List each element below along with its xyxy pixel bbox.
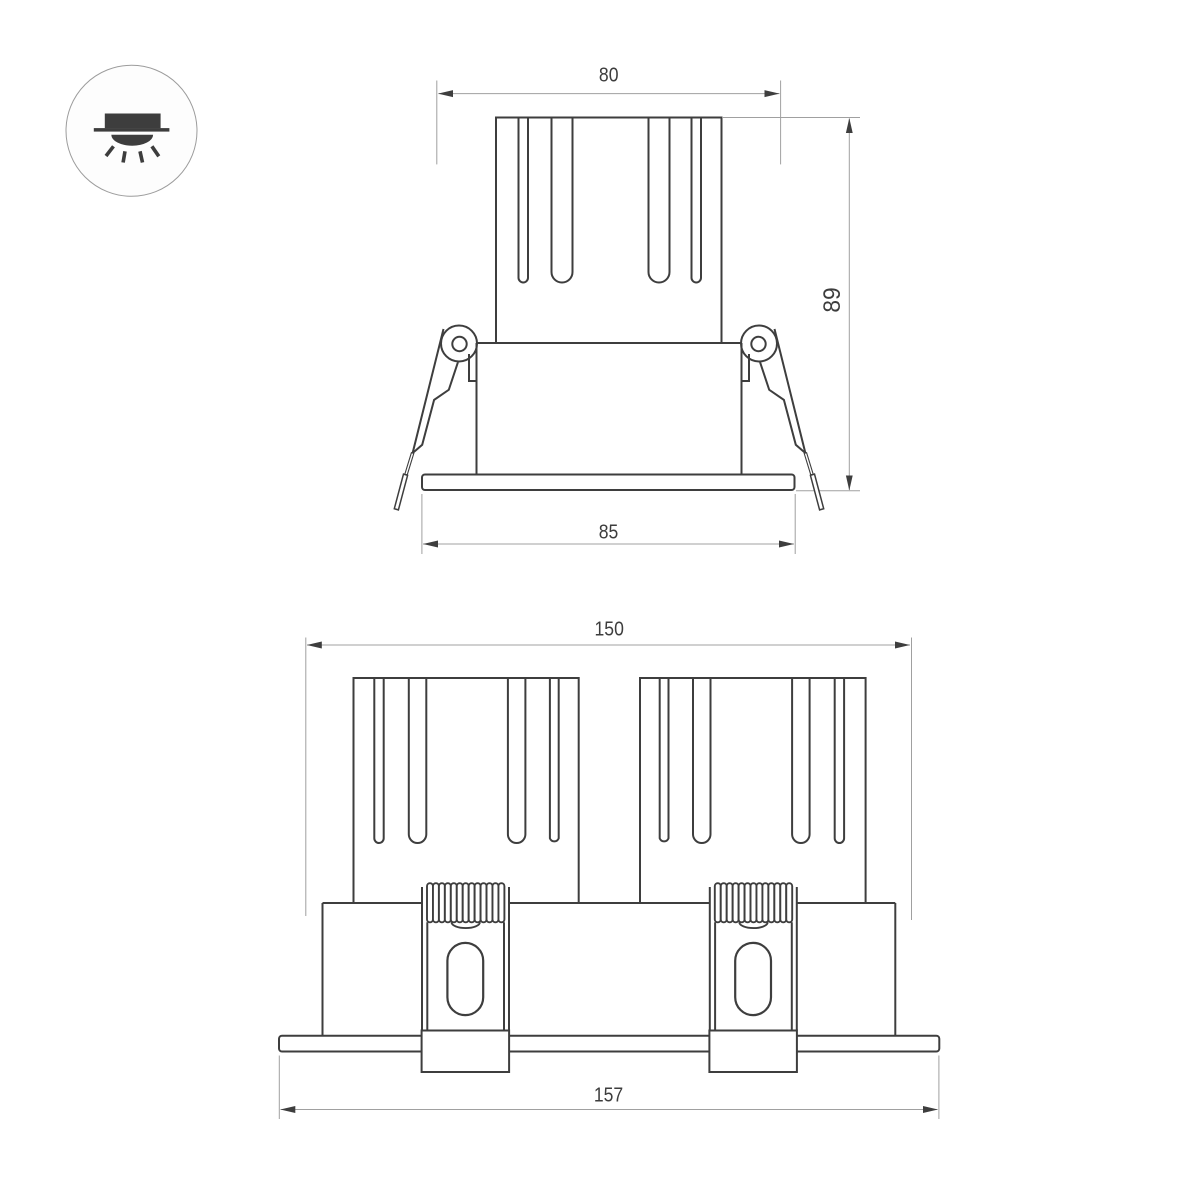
svg-text:157: 157 bbox=[594, 1083, 623, 1105]
svg-text:85: 85 bbox=[599, 520, 619, 542]
svg-text:150: 150 bbox=[595, 617, 624, 639]
svg-text:89: 89 bbox=[819, 287, 846, 312]
svg-text:80: 80 bbox=[599, 64, 619, 86]
